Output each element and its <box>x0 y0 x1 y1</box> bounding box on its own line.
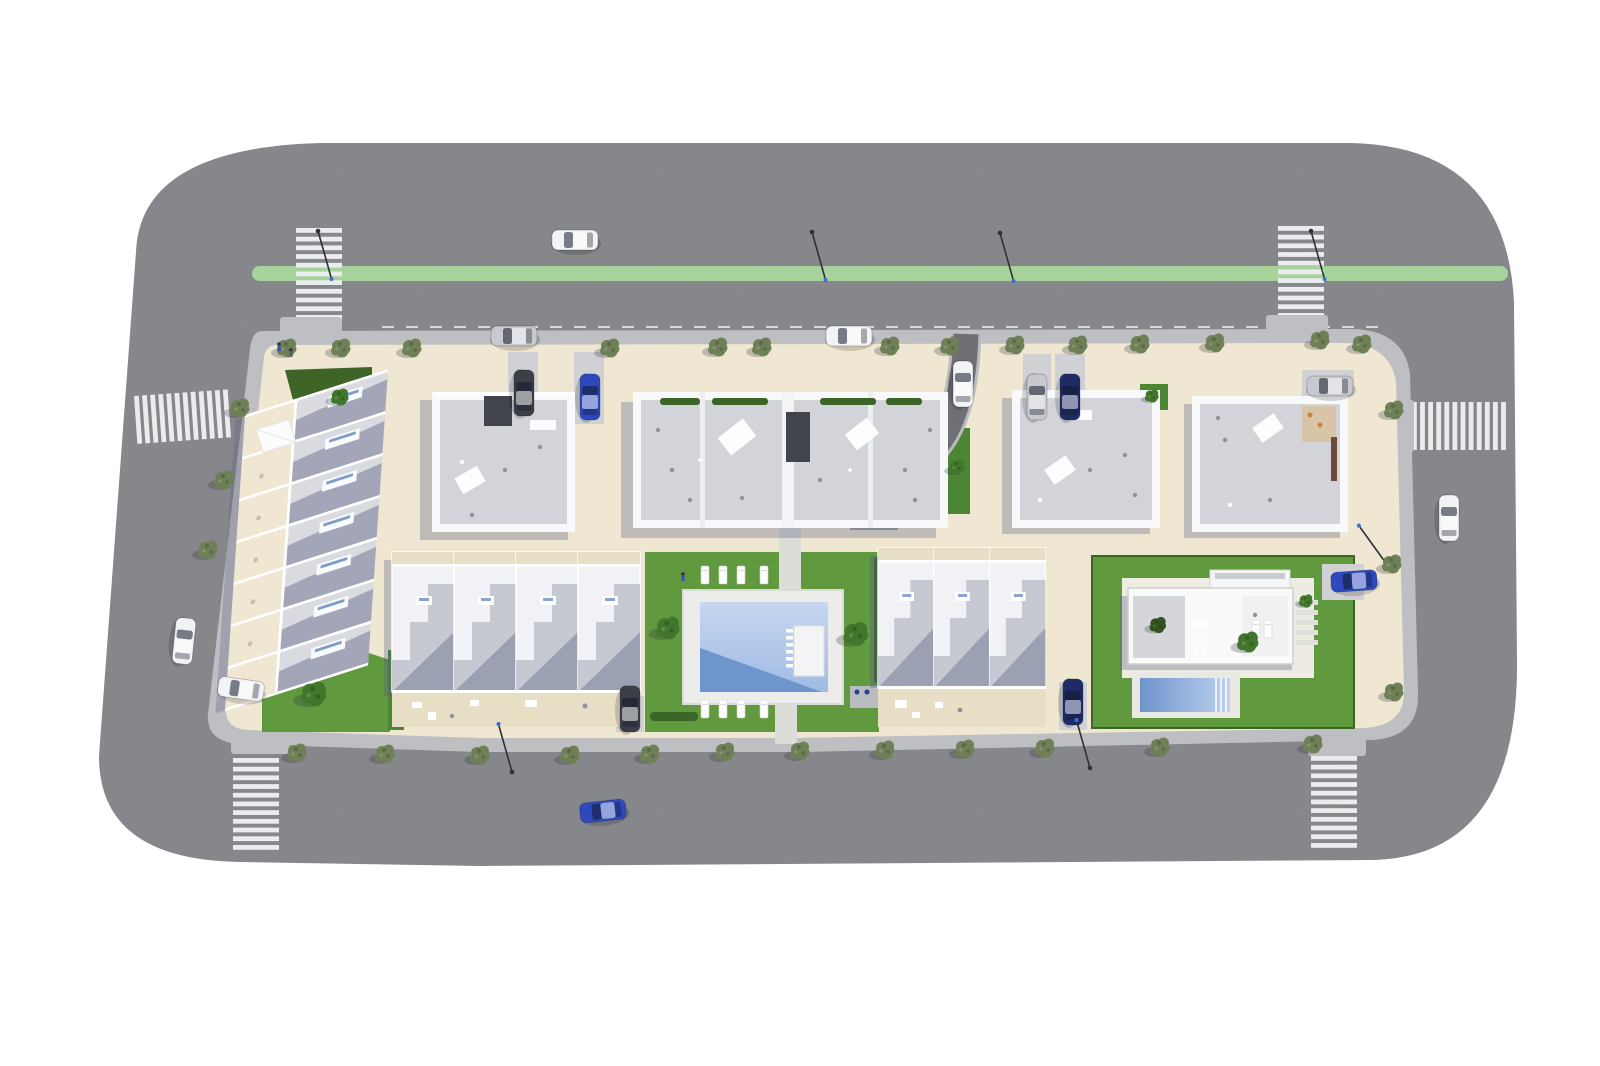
top-right-apartment-2 <box>1184 396 1348 538</box>
bottom-left-townhouses <box>384 552 640 727</box>
bottom-right-townhouses <box>870 548 1046 727</box>
site-plan-rendering <box>0 0 1600 1066</box>
roof-hedge-1 <box>660 398 700 405</box>
crossing-pad-top-right <box>1266 315 1328 331</box>
roof-hedge-2 <box>712 398 768 405</box>
pool-platform <box>794 626 824 676</box>
stair-core <box>786 412 810 462</box>
crossing-pad-top-left <box>280 317 342 333</box>
patio-band <box>392 693 640 727</box>
path-to-pool-south <box>775 700 797 744</box>
car-white-right-road <box>1434 494 1459 544</box>
top-left-apartment <box>420 392 575 540</box>
roof-hedge-4 <box>886 398 922 405</box>
car-dark-patio <box>615 685 640 735</box>
stair-strip <box>1331 437 1337 481</box>
car-white-driveway <box>948 360 973 410</box>
car-navy-patio <box>1058 678 1083 728</box>
site-plan-svg <box>0 0 1600 1066</box>
car-silver-curb-2 <box>1306 376 1356 401</box>
hedge-courtyard-bottom <box>650 712 698 721</box>
pool-equipment-pad <box>850 686 878 708</box>
left-townhouse-row <box>215 369 388 714</box>
car-white-top-road <box>551 230 601 255</box>
pool-equipment-2 <box>865 690 870 695</box>
car-navy-driveway <box>1055 373 1080 423</box>
pool-equipment-1 <box>855 690 860 695</box>
car-blue-driveway <box>575 373 600 423</box>
car-silver-driveway <box>1022 373 1047 423</box>
roof-hedge-3 <box>820 398 876 405</box>
rooftop-utilities <box>484 396 512 426</box>
central-apartment <box>621 392 948 538</box>
car-dark-driveway <box>509 369 534 419</box>
patio-wall <box>878 686 1046 689</box>
car-white-curb <box>825 326 875 351</box>
patio-wall <box>392 690 640 693</box>
car-silver-curb-1 <box>490 326 540 351</box>
skylight <box>530 420 556 430</box>
